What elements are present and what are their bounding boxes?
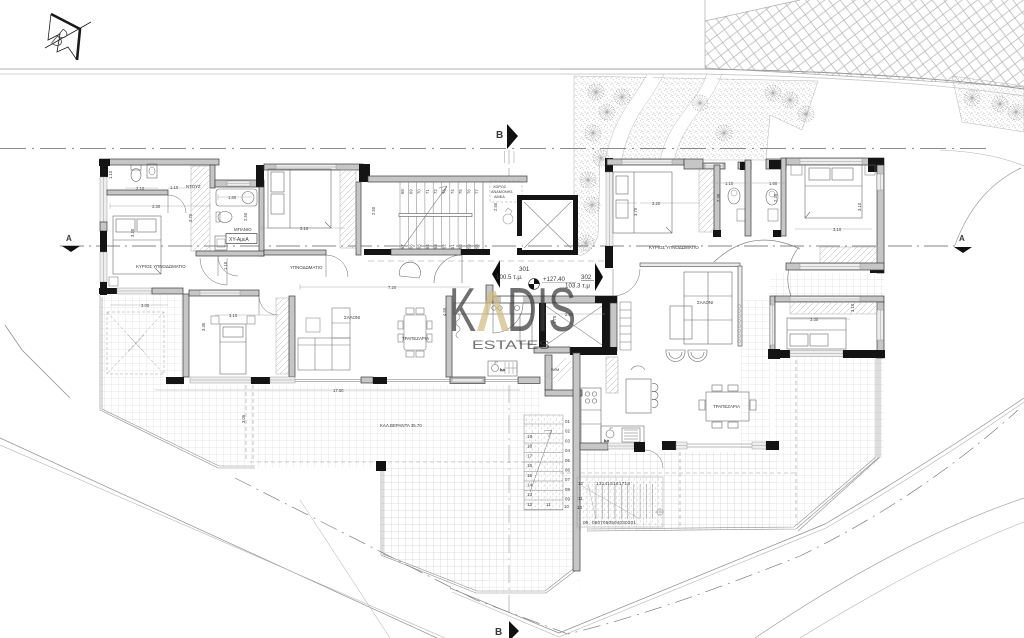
svg-text:ΑΝΑΜΟΝΗΣ: ΑΝΑΜΟΝΗΣ (491, 190, 513, 194)
svg-text:ΜΠΑΝΙΟ: ΜΠΑΝΙΟ (234, 227, 252, 232)
svg-text:17.50: 17.50 (333, 388, 344, 393)
svg-text:XY-ΑμεΑ: XY-ΑμεΑ (229, 237, 249, 243)
svg-text:04: 04 (565, 448, 570, 453)
svg-text:4.55: 4.55 (442, 307, 447, 316)
svg-text:77: 77 (475, 189, 480, 194)
svg-text:ΚΑΛ.ΒΕΡΑΝΤΑ 35.70: ΚΑΛ.ΒΕΡΑΝΤΑ 35.70 (380, 423, 422, 428)
svg-text:1.10: 1.10 (170, 185, 179, 190)
svg-text:1.60: 1.60 (769, 181, 778, 186)
svg-text:3.05: 3.05 (241, 414, 246, 423)
svg-text:15: 15 (527, 473, 533, 478)
svg-text:13: 13 (527, 492, 533, 497)
svg-text:76: 76 (466, 189, 471, 194)
svg-text:1.10: 1.10 (223, 261, 228, 270)
svg-text:66: 66 (408, 244, 413, 249)
svg-text:3.10: 3.10 (300, 226, 309, 231)
svg-text:ΣΑΛΟΝΙ: ΣΑΛΟΝΙ (697, 300, 713, 305)
svg-text:1.10: 1.10 (725, 181, 734, 186)
svg-text:2.35: 2.35 (716, 193, 721, 202)
svg-text:ESTATES: ESTATES (472, 338, 550, 352)
svg-text:3.10: 3.10 (833, 227, 842, 232)
svg-text:ΤΡΑΠΕΖΑΡΙΑ: ΤΡΑΠΕΖΑΡΙΑ (402, 336, 429, 341)
svg-text:2.10: 2.10 (136, 186, 145, 191)
svg-text:09: 09 (565, 497, 570, 502)
svg-text:B: B (495, 627, 502, 638)
svg-text:65: 65 (417, 244, 422, 249)
svg-text:3.10: 3.10 (850, 303, 855, 312)
svg-text:b.o: b.o (604, 439, 609, 443)
svg-text:58: 58 (475, 244, 480, 249)
svg-text:12: 12 (578, 481, 584, 486)
svg-text:74: 74 (450, 189, 455, 194)
svg-text:B: B (496, 130, 503, 141)
svg-text:12: 12 (527, 502, 533, 507)
svg-text:71: 71 (425, 189, 430, 194)
svg-text:3.35: 3.35 (201, 322, 206, 331)
svg-text:1.10: 1.10 (108, 170, 113, 179)
svg-text:ΤΡΑΠΕΖΑΡΙΑ: ΤΡΑΠΕΖΑΡΙΑ (713, 404, 740, 409)
svg-text:06: 06 (565, 468, 570, 473)
svg-text:2.50: 2.50 (371, 206, 376, 215)
svg-text:10: 10 (577, 505, 583, 510)
svg-text:2.35: 2.35 (773, 193, 778, 202)
svg-text:19: 19 (527, 434, 533, 439)
svg-text:A: A (959, 234, 965, 243)
svg-text:131415161718: 131415161718 (596, 481, 630, 486)
svg-text:0807060504030201: 0807060504030201 (592, 520, 636, 525)
svg-text:64: 64 (425, 244, 430, 249)
svg-text:301: 301 (519, 266, 530, 273)
svg-text:10: 10 (564, 504, 569, 509)
svg-text:3.30: 3.30 (152, 204, 161, 209)
svg-text:72: 72 (433, 189, 438, 194)
svg-text:08: 08 (565, 487, 570, 492)
svg-text:11: 11 (546, 502, 551, 507)
svg-text:1.80: 1.80 (228, 195, 237, 200)
svg-text:16: 16 (527, 463, 533, 468)
svg-text:60: 60 (458, 244, 463, 249)
svg-text:59: 59 (466, 244, 471, 249)
svg-text:01: 01 (565, 419, 570, 424)
svg-text:62: 62 (442, 244, 447, 249)
svg-text:63: 63 (433, 244, 438, 249)
svg-text:ΥΠΝΟΔΩΜΑΤΙΟ: ΥΠΝΟΔΩΜΑΤΙΟ (290, 265, 323, 270)
svg-text:ΚΥΡΙΟΣ ΥΠΝΟΔΩΜΑΤΙΟ: ΚΥΡΙΟΣ ΥΠΝΟΔΩΜΑΤΙΟ (649, 245, 699, 250)
svg-text:11: 11 (578, 496, 583, 501)
svg-text:05: 05 (565, 458, 570, 463)
svg-text:DIS: DIS (507, 276, 576, 345)
svg-text:3.20: 3.20 (652, 201, 661, 206)
svg-text:ΣΑΛΟΝΙ: ΣΑΛΟΝΙ (344, 315, 360, 320)
svg-text:A: A (66, 234, 72, 243)
svg-text:61: 61 (450, 244, 455, 249)
svg-text:2.70: 2.70 (188, 213, 193, 222)
svg-text:02: 02 (565, 429, 570, 434)
svg-text:73: 73 (442, 189, 447, 194)
svg-text:09: 09 (583, 520, 589, 525)
svg-text:3.70: 3.70 (633, 207, 638, 216)
svg-text:3.30: 3.30 (130, 228, 135, 237)
svg-text:2.50: 2.50 (493, 202, 498, 211)
svg-text:75: 75 (458, 189, 463, 194)
svg-text:ΝΤΟΥΖ: ΝΤΟΥΖ (186, 184, 201, 189)
svg-text:K: K (449, 276, 476, 345)
svg-text:3.00: 3.00 (141, 303, 150, 308)
svg-text:07: 07 (565, 477, 570, 482)
svg-text:ΚΥΡΙΟΣ ΥΠΝΟΔΩΜΑΤΙΟ: ΚΥΡΙΟΣ ΥΠΝΟΔΩΜΑΤΙΟ (136, 264, 186, 269)
svg-text:ΑΜΕΑ: ΑΜΕΑ (494, 195, 505, 199)
svg-text:69: 69 (408, 189, 413, 194)
svg-text:67: 67 (400, 244, 405, 249)
svg-text:7.20: 7.20 (388, 285, 397, 290)
svg-text:68: 68 (400, 189, 405, 194)
svg-text:70: 70 (417, 189, 422, 194)
svg-text:W/M: W/M (551, 367, 559, 372)
svg-text:ΧΩΡΟΣ: ΧΩΡΟΣ (493, 185, 507, 189)
svg-text:3.10: 3.10 (857, 202, 862, 211)
svg-text:2.50: 2.50 (243, 212, 248, 221)
svg-text:03: 03 (565, 438, 570, 443)
svg-text:3.10: 3.10 (229, 313, 238, 318)
svg-text:3.30: 3.30 (810, 317, 819, 322)
svg-text:b.o: b.o (500, 368, 505, 372)
svg-text:302: 302 (581, 274, 592, 281)
svg-text:17: 17 (527, 453, 533, 458)
svg-text:18: 18 (527, 444, 533, 449)
